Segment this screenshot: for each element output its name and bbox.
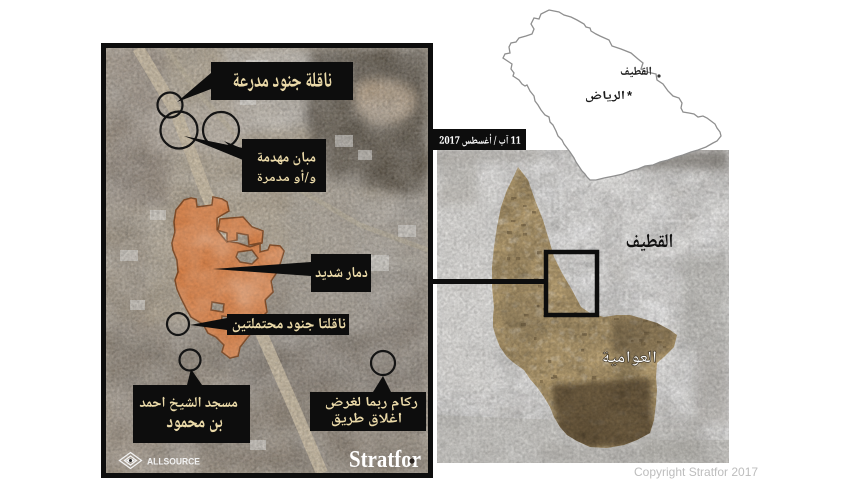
- svg-text:Copyright Stratfor 2017: Copyright Stratfor 2017: [634, 465, 758, 479]
- svg-text:ALLSOURCE: ALLSOURCE: [147, 457, 200, 468]
